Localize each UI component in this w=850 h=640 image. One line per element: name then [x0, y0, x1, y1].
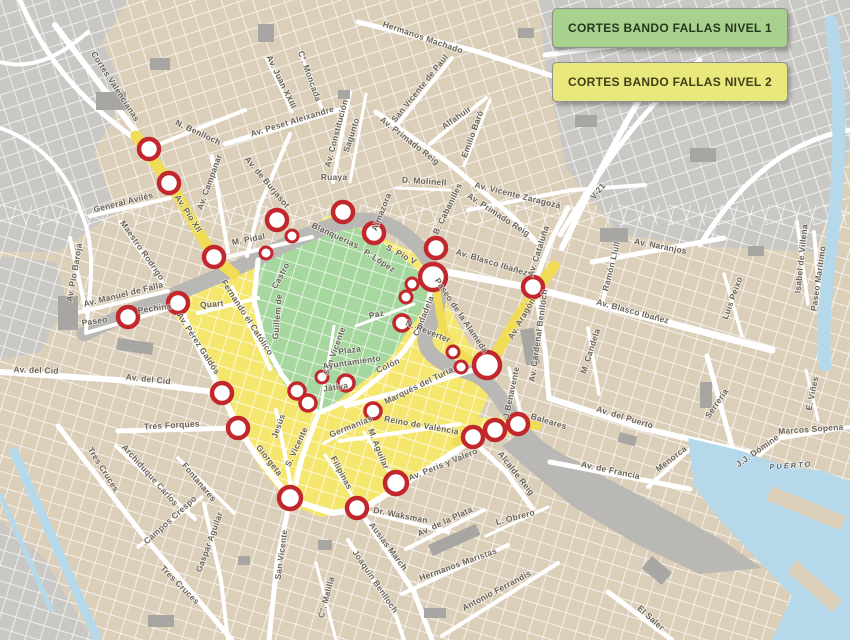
road-cut-marker — [406, 278, 418, 290]
road-cut-marker — [485, 420, 505, 440]
street-label: Av. del Cid — [13, 364, 59, 376]
street-label: Quart — [200, 298, 224, 310]
road-cut-marker — [474, 352, 500, 378]
road-cut-marker — [118, 307, 138, 327]
road-cut-marker — [267, 210, 287, 230]
legend: CORTES BANDO FALLAS NIVEL 1 CORTES BANDO… — [552, 8, 788, 116]
road-cut-marker — [212, 383, 232, 403]
road-cut-marker — [400, 291, 412, 303]
road-cut-marker — [426, 238, 446, 258]
road-cut-marker — [279, 487, 301, 509]
legend-nivel1-label: CORTES BANDO FALLAS NIVEL 1 — [568, 21, 772, 35]
road-cut-marker — [463, 427, 483, 447]
legend-nivel1-box: CORTES BANDO FALLAS NIVEL 1 — [552, 8, 788, 48]
road-cut-marker — [385, 472, 407, 494]
legend-nivel2-label: CORTES BANDO FALLAS NIVEL 2 — [568, 75, 772, 89]
road-cut-marker — [139, 139, 159, 159]
road-cut-marker — [159, 173, 179, 193]
road-cut-marker — [455, 361, 467, 373]
road-cut-marker — [347, 498, 367, 518]
legend-nivel2-box: CORTES BANDO FALLAS NIVEL 2 — [552, 62, 788, 102]
street-label: Ruaya — [321, 172, 348, 182]
road-cut-marker — [260, 247, 272, 259]
road-cut-marker — [300, 395, 316, 411]
road-cut-marker — [228, 418, 248, 438]
road-cut-marker — [204, 247, 224, 267]
road-cut-marker — [333, 202, 353, 222]
road-cut-marker — [286, 230, 298, 242]
road-cut-marker — [447, 346, 459, 358]
fallas-map-screenshot: Cortes ValencianasN. BenllochGeneral Avi… — [0, 0, 850, 640]
road-cut-marker — [508, 414, 528, 434]
